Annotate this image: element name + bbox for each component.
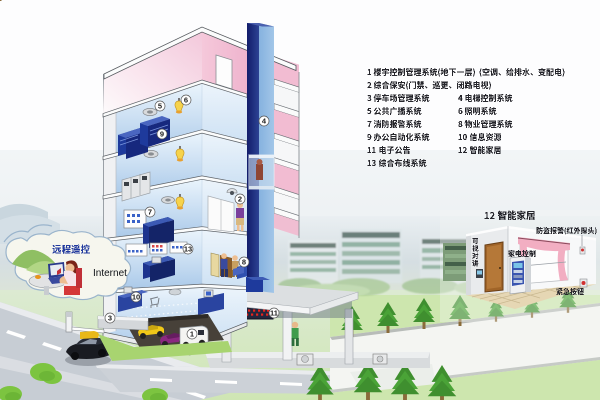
svg-text:7: 7 (148, 208, 152, 217)
svg-text:6: 6 (184, 96, 188, 105)
svg-text:Internet: Internet (93, 268, 127, 279)
svg-text:11: 11 (270, 309, 278, 318)
svg-text:13: 13 (184, 245, 192, 254)
svg-text:8: 8 (242, 258, 246, 267)
svg-text:9: 9 (160, 130, 164, 139)
svg-text:5: 5 (158, 102, 162, 111)
svg-text:10: 10 (132, 293, 140, 302)
svg-text:1: 1 (190, 330, 194, 339)
svg-text:2: 2 (238, 195, 242, 204)
svg-text:3: 3 (108, 314, 112, 323)
